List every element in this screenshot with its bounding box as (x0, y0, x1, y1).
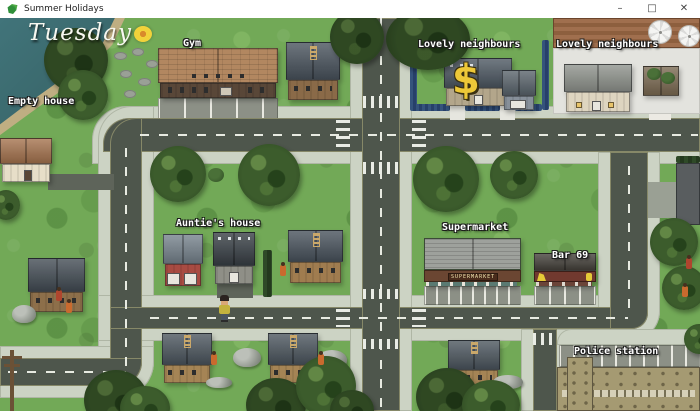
player-character (219, 295, 230, 322)
tree (0, 190, 20, 220)
crosswalk (412, 120, 426, 150)
umbrella-icon (678, 25, 700, 47)
building-gym (158, 48, 278, 98)
flower-sprite (134, 26, 152, 42)
rock (12, 305, 36, 323)
utility-pole-crossarm (4, 364, 20, 367)
label-lovely-neighbours-west: Lovely neighbours (418, 39, 520, 50)
app-icon (7, 4, 18, 15)
stone (114, 52, 127, 60)
hedge (676, 156, 700, 163)
npc-character (66, 302, 72, 313)
crosswalk (412, 309, 426, 327)
crosswalk (363, 289, 399, 299)
stone (146, 60, 158, 68)
crosswalk (363, 96, 399, 108)
lit-window (576, 102, 582, 108)
game-viewport[interactable]: SUPERMARKET (0, 18, 700, 411)
gym-parking-lot (158, 98, 278, 120)
utility-pole-crossarm (2, 356, 22, 359)
npc-character (56, 290, 62, 301)
title-bar[interactable]: Summer Holidays – □ ✕ (0, 0, 700, 18)
label-police-station: Police station (574, 346, 658, 357)
sidewalk (557, 329, 700, 345)
npc-character (686, 258, 692, 269)
npc-character (682, 286, 688, 297)
center-line (628, 166, 630, 316)
building-aunties-garage-house (163, 234, 203, 286)
label-supermarket: Supermarket (442, 222, 508, 233)
bar-parking-lot (534, 286, 596, 305)
supermarket-parking-lot (424, 286, 521, 305)
building-supermarket: SUPERMARKET (424, 238, 521, 286)
building-lovely-neighbours-east-garage (643, 66, 679, 96)
bar-sign-icon (586, 273, 592, 281)
building-aunties-house (213, 232, 255, 284)
label-bar-69: Bar 69 (552, 250, 588, 261)
building-house (286, 42, 340, 100)
crosswalk (336, 309, 350, 327)
npc-character (280, 265, 286, 276)
tree (238, 144, 300, 206)
minimize-button[interactable]: – (604, 0, 636, 18)
center-line (380, 18, 382, 411)
rock (206, 377, 232, 388)
utility-pole (10, 350, 14, 411)
crosswalk (336, 120, 350, 150)
crosswalk (363, 162, 399, 174)
label-empty-house: Empty house (8, 96, 74, 107)
building-empty-house (0, 138, 52, 182)
building-house (288, 230, 343, 283)
lit-window (608, 102, 614, 108)
npc-character (318, 354, 324, 365)
close-button[interactable]: ✕ (668, 0, 700, 18)
hedge (263, 250, 272, 297)
tree (58, 70, 108, 120)
driveway (48, 174, 114, 190)
label-gym: Gym (183, 38, 201, 49)
police-station-tower (567, 357, 593, 411)
money-marker: $ (452, 60, 480, 100)
crosswalk (363, 339, 399, 349)
app-window: Summer Holidays – □ ✕ (0, 0, 700, 411)
supermarket-sign: SUPERMARKET (448, 273, 498, 281)
tree (662, 266, 700, 310)
bush (208, 168, 224, 182)
stone (120, 70, 132, 78)
hedge (542, 40, 549, 110)
tree (413, 146, 479, 212)
stone (138, 78, 151, 86)
building-slab (676, 163, 700, 225)
stone (132, 48, 144, 56)
center-line (125, 148, 127, 378)
label-lovely-neighbours-east: Lovely neighbours (556, 39, 658, 50)
npc-character (211, 354, 217, 365)
building-house (162, 333, 212, 383)
gym-roof-vents (192, 74, 244, 78)
building-lovely-neighbours-east (564, 64, 632, 112)
driveway (648, 182, 678, 218)
maximize-button[interactable]: □ (636, 0, 668, 18)
tree (490, 151, 538, 199)
crosswalk (533, 333, 557, 345)
label-aunties-house: Auntie's house (176, 218, 260, 229)
stone (124, 90, 136, 98)
window-title: Summer Holidays (24, 4, 104, 14)
rock (233, 348, 261, 367)
tree (150, 146, 206, 202)
day-indicator: Tuesday (28, 20, 132, 46)
building-lovely-neighbours-west-garage (502, 70, 536, 110)
building-house (28, 258, 85, 312)
